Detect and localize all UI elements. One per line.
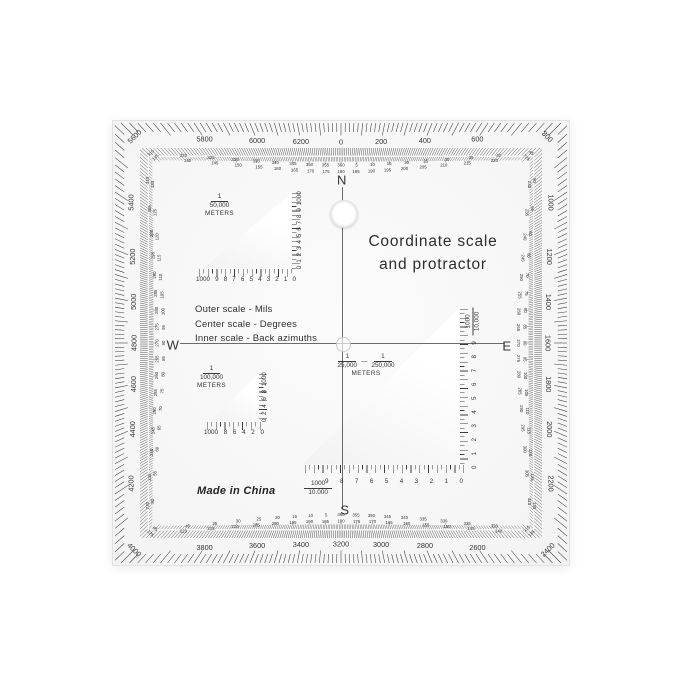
scale-tick bbox=[410, 123, 413, 132]
scale-tick bbox=[411, 525, 413, 529]
scale-tick bbox=[363, 157, 364, 161]
back-azimuth-label: 50 bbox=[150, 499, 155, 504]
scale-tick bbox=[558, 289, 567, 291]
scale-tick bbox=[521, 123, 529, 132]
scale-tick bbox=[234, 148, 238, 156]
scale-tick bbox=[521, 554, 529, 563]
scale-tick bbox=[149, 468, 153, 470]
scale-tick bbox=[140, 404, 148, 406]
scale-tick bbox=[149, 281, 153, 282]
scale-tick bbox=[414, 525, 416, 529]
coordinate-protractor: 0200400600800100012001400160018002000220… bbox=[112, 120, 570, 566]
mils-label: 3000 bbox=[373, 540, 389, 549]
ruler-number: 6 bbox=[297, 227, 303, 231]
scale-tick bbox=[115, 464, 124, 469]
scale-tick bbox=[301, 157, 302, 161]
scale-tick bbox=[310, 531, 311, 539]
ruler-number: 8 bbox=[340, 479, 344, 485]
mils-label: 600 bbox=[471, 134, 483, 143]
scale-tick bbox=[529, 386, 533, 387]
scale-tick bbox=[203, 525, 206, 529]
ruler-number: 1 bbox=[284, 277, 288, 283]
scale-tick bbox=[558, 448, 567, 452]
scale-tick bbox=[439, 531, 443, 539]
fraction-denominator: 10,000 bbox=[474, 312, 482, 332]
back-azimuth-label: 255 bbox=[518, 291, 523, 299]
scale-tick bbox=[140, 217, 148, 222]
scale-tick bbox=[140, 406, 148, 409]
scale-tick bbox=[433, 123, 437, 132]
mils-label: 2200 bbox=[547, 475, 556, 491]
scale-tick bbox=[534, 362, 542, 363]
scale-tick bbox=[115, 289, 124, 291]
scale-tick bbox=[300, 525, 301, 529]
scale-tick bbox=[464, 531, 469, 539]
scale-tick bbox=[558, 134, 567, 143]
ruler-number: 0 bbox=[292, 277, 296, 283]
scale-tick bbox=[381, 157, 382, 161]
scale-tick bbox=[149, 373, 153, 374]
scale-tick bbox=[193, 157, 196, 161]
scale-tick bbox=[264, 525, 266, 529]
scale-tick bbox=[190, 148, 196, 156]
scale-tick bbox=[534, 381, 542, 383]
scale-tick bbox=[374, 148, 375, 156]
scale-tick bbox=[558, 185, 567, 191]
scale-tick bbox=[270, 123, 273, 132]
scale-tick bbox=[140, 241, 148, 245]
scale-tick bbox=[140, 449, 148, 453]
scale-tick bbox=[534, 307, 542, 308]
scale-tick bbox=[284, 554, 286, 563]
scale-tick bbox=[140, 408, 148, 411]
scale-tick bbox=[394, 148, 396, 156]
mils-label: 1800 bbox=[544, 376, 553, 392]
scale-tick bbox=[218, 123, 223, 132]
scale-tick bbox=[234, 531, 238, 539]
scale-tick bbox=[534, 449, 542, 453]
scale-tick bbox=[140, 441, 148, 445]
scale-tick bbox=[529, 385, 533, 386]
scale-tick bbox=[115, 307, 124, 308]
ruler-number: 2 bbox=[251, 430, 255, 436]
scale-tick bbox=[320, 148, 321, 156]
scale-tick bbox=[534, 303, 542, 305]
scale-tick bbox=[149, 423, 153, 425]
title-line-1: Coordinate scale bbox=[318, 230, 548, 253]
scale-tick bbox=[140, 483, 148, 489]
scale-tick bbox=[212, 123, 217, 132]
scale-tick bbox=[282, 148, 284, 156]
scale-tick bbox=[115, 428, 124, 432]
scale-tick bbox=[437, 531, 441, 539]
degree-label: 155 bbox=[422, 522, 430, 527]
scale-tick bbox=[318, 157, 319, 161]
scale-tick bbox=[279, 554, 282, 563]
back-azimuth-label: 215 bbox=[464, 160, 472, 165]
ruler-number: 5 bbox=[249, 277, 253, 283]
scale-tick bbox=[530, 522, 533, 525]
scale-tick bbox=[316, 531, 317, 539]
scale-tick bbox=[558, 438, 567, 442]
scale-tick bbox=[529, 400, 533, 401]
scale-tick bbox=[307, 525, 308, 529]
scale-tick bbox=[140, 372, 148, 373]
back-azimuth-label: 265 bbox=[516, 324, 521, 332]
scale-tick bbox=[558, 418, 567, 421]
scale-tick bbox=[427, 551, 432, 564]
scale-tick bbox=[413, 157, 415, 161]
scale-tick bbox=[558, 507, 567, 514]
back-azimuth-label: 145 bbox=[211, 160, 219, 165]
scale-tick bbox=[140, 168, 148, 175]
back-azimuth-label: 20 bbox=[275, 515, 280, 520]
scale-tick bbox=[115, 382, 124, 384]
scale-tick bbox=[140, 518, 148, 525]
scale-tick bbox=[140, 194, 148, 200]
scale-label-100k: 1100,000 METERS bbox=[197, 365, 226, 390]
scale-tick bbox=[140, 288, 148, 290]
ruler-number: 2 bbox=[297, 253, 303, 257]
scale-tick bbox=[115, 443, 124, 447]
degree-label: 200 bbox=[272, 521, 280, 526]
scale-tick bbox=[239, 148, 243, 156]
degree-label: 330 bbox=[231, 157, 239, 162]
scale-tick bbox=[534, 383, 542, 385]
ruler-number: 1000 bbox=[262, 372, 268, 386]
scale-tick bbox=[149, 225, 153, 227]
scale-tick bbox=[302, 554, 304, 563]
scale-tick bbox=[190, 526, 193, 529]
scale-tick bbox=[282, 157, 283, 161]
ruler-number: 5 bbox=[297, 234, 303, 238]
scale-tick bbox=[198, 157, 201, 161]
scale-tick bbox=[402, 148, 404, 156]
scale-tick bbox=[558, 325, 567, 326]
scale-tick bbox=[505, 526, 508, 529]
scale-tick bbox=[115, 418, 124, 421]
scale-tick bbox=[534, 495, 542, 501]
scale-tick bbox=[149, 314, 153, 315]
scale-tick bbox=[534, 370, 542, 371]
degree-label: 205 bbox=[253, 522, 261, 527]
scale-tick bbox=[534, 288, 542, 290]
scale-tick bbox=[534, 280, 542, 282]
scale-tick bbox=[373, 531, 374, 539]
scale-tick bbox=[149, 465, 153, 467]
scale-tick bbox=[558, 443, 567, 447]
scale-tick bbox=[149, 265, 153, 267]
scale-tick bbox=[115, 244, 124, 248]
scale-tick bbox=[168, 123, 175, 132]
scale-tick bbox=[115, 373, 124, 374]
scale-tick bbox=[115, 482, 124, 488]
mils-label: 3400 bbox=[293, 540, 309, 549]
scale-tick bbox=[219, 531, 224, 539]
scale-tick bbox=[530, 513, 533, 516]
scale-tick bbox=[149, 364, 153, 365]
mils-label: 0 bbox=[339, 138, 343, 147]
scale-tick bbox=[529, 306, 533, 307]
scale-tick bbox=[115, 228, 124, 233]
back-azimuth-label: 285 bbox=[518, 387, 523, 395]
scale-tick bbox=[115, 536, 124, 544]
degree-label: 105 bbox=[524, 389, 529, 397]
scale-tick bbox=[453, 148, 457, 156]
scale-tick bbox=[361, 123, 362, 136]
scale-tick bbox=[534, 286, 542, 288]
scale-tick bbox=[384, 531, 386, 539]
scale-tick bbox=[558, 228, 567, 233]
degree-label: 270 bbox=[155, 339, 160, 347]
scale-tick bbox=[529, 439, 533, 441]
scale-tick bbox=[140, 313, 148, 314]
scale-tick bbox=[529, 458, 533, 460]
scale-tick bbox=[140, 307, 148, 308]
back-azimuth-label: 110 bbox=[158, 273, 163, 280]
back-azimuth-label: 100 bbox=[160, 307, 165, 315]
degree-label: 235 bbox=[147, 473, 152, 481]
scale-tick bbox=[451, 531, 455, 539]
scale-tick bbox=[115, 312, 124, 313]
ruler-numbers-100k-bottom: 100086420 bbox=[204, 430, 264, 436]
scale-tick bbox=[558, 373, 567, 374]
scale-tick bbox=[140, 444, 148, 448]
scale-tick bbox=[558, 165, 567, 172]
scale-tick bbox=[383, 525, 384, 529]
scale-tick bbox=[115, 494, 124, 500]
scale-tick bbox=[558, 482, 567, 488]
scale-tick bbox=[284, 531, 286, 539]
scale-tick bbox=[529, 465, 533, 467]
scale-tick bbox=[457, 525, 459, 529]
scale-tick bbox=[534, 522, 542, 529]
ruler-label-25k-bottom: 100010.000 bbox=[304, 480, 330, 497]
scale-tick bbox=[534, 395, 542, 397]
scale-tick bbox=[529, 419, 533, 421]
scale-tick bbox=[530, 161, 533, 164]
scale-tick bbox=[365, 531, 366, 539]
scale-tick bbox=[149, 319, 153, 320]
scale-tick bbox=[149, 304, 153, 305]
compass-west: W bbox=[167, 338, 180, 353]
scale-tick bbox=[140, 522, 148, 529]
scale-tick bbox=[534, 188, 542, 194]
scale-tick bbox=[149, 239, 153, 241]
scale-tick bbox=[174, 526, 177, 529]
scale-tick bbox=[181, 123, 188, 132]
ruler-number: 8 bbox=[224, 430, 228, 436]
scale-tick bbox=[140, 459, 148, 464]
scale-tick bbox=[288, 148, 290, 156]
scale-tick bbox=[140, 486, 148, 492]
scale-tick bbox=[229, 554, 234, 563]
scale-tick bbox=[534, 464, 542, 469]
scale-tick bbox=[140, 515, 148, 522]
scale-tick bbox=[328, 148, 329, 156]
back-azimuth-label: 70 bbox=[158, 406, 163, 411]
scale-tick bbox=[455, 525, 457, 529]
scale-tick bbox=[534, 368, 542, 369]
scale-tick bbox=[534, 374, 542, 375]
scale-tick bbox=[511, 148, 518, 156]
center-circle bbox=[336, 337, 351, 352]
scale-tick bbox=[140, 376, 148, 377]
scale-tick bbox=[558, 382, 567, 384]
scale-tick bbox=[456, 531, 461, 539]
scale-tick bbox=[115, 165, 124, 172]
ruler-number: 0 bbox=[459, 479, 463, 485]
scale-tick bbox=[149, 441, 153, 443]
back-azimuth-label: 10 bbox=[308, 513, 313, 518]
scale-tick bbox=[404, 123, 408, 136]
scale-tick bbox=[326, 148, 327, 156]
degree-label: 305 bbox=[147, 205, 152, 213]
scale-tick bbox=[140, 309, 148, 310]
scale-tick bbox=[529, 368, 533, 369]
scale-tick bbox=[558, 476, 567, 482]
scale-tick bbox=[302, 123, 304, 132]
back-azimuth-label: 30 bbox=[236, 519, 241, 524]
scale-tick bbox=[174, 123, 181, 132]
scale-tick bbox=[242, 148, 246, 156]
scale-tick bbox=[534, 398, 542, 400]
product-photo: 0200400600800100012001400160018002000220… bbox=[0, 0, 700, 700]
scale-tick bbox=[115, 126, 124, 135]
scale-tick bbox=[396, 554, 398, 563]
scale-tick bbox=[306, 554, 307, 563]
scale-tick bbox=[171, 148, 178, 156]
scale-tick bbox=[149, 419, 153, 421]
scale-tick bbox=[140, 223, 148, 228]
scale-tick bbox=[534, 217, 542, 222]
scale-tick bbox=[558, 470, 567, 475]
scale-tick bbox=[534, 301, 542, 303]
scale-tick bbox=[529, 373, 533, 374]
scale-tick bbox=[140, 293, 148, 295]
scale-tick bbox=[140, 370, 148, 371]
scale-tick bbox=[361, 531, 362, 539]
scale-tick bbox=[300, 157, 301, 161]
scale-tick bbox=[149, 198, 153, 201]
scale-tick bbox=[279, 157, 280, 161]
scale-tick bbox=[296, 157, 297, 161]
scale-tick bbox=[115, 260, 124, 263]
scale-tick bbox=[511, 531, 518, 539]
scale-tick bbox=[314, 531, 315, 539]
scale-tick bbox=[199, 531, 204, 539]
ruler-label-25k-side: 100010,000 bbox=[465, 310, 482, 336]
scale-tick bbox=[149, 482, 153, 485]
scale-tick bbox=[534, 454, 542, 458]
scale-tick bbox=[297, 551, 299, 564]
scale-tick bbox=[320, 531, 321, 539]
scale-tick bbox=[140, 297, 148, 299]
scale-tick bbox=[529, 221, 533, 223]
degree-label: 280 bbox=[154, 306, 159, 314]
scale-tick bbox=[312, 148, 313, 156]
scale-tick bbox=[441, 531, 445, 539]
scale-tick bbox=[469, 531, 474, 539]
mils-label: 4200 bbox=[126, 475, 135, 491]
scale-tick bbox=[244, 157, 246, 161]
scale-tick bbox=[529, 404, 533, 405]
scale-tick bbox=[356, 531, 357, 539]
degree-label: 360 bbox=[337, 163, 345, 168]
scale-tick bbox=[380, 157, 381, 161]
scale-tick bbox=[149, 463, 153, 465]
scale-tick bbox=[433, 554, 437, 563]
scale-tick bbox=[115, 179, 124, 186]
scale-tick bbox=[308, 531, 309, 539]
scale-tick bbox=[558, 453, 567, 458]
scale-tick bbox=[451, 148, 455, 156]
scale-tick bbox=[279, 123, 282, 132]
scale-tick bbox=[149, 249, 153, 251]
scale-tick bbox=[326, 531, 327, 539]
scale-tick bbox=[314, 148, 315, 156]
scale-tick bbox=[370, 157, 371, 161]
ruler-number: 7 bbox=[297, 221, 303, 225]
scale-tick bbox=[140, 378, 148, 379]
scale-tick bbox=[140, 379, 148, 380]
mils-label: 2600 bbox=[469, 543, 485, 552]
scale-tick bbox=[437, 148, 441, 156]
scale-tick bbox=[558, 293, 567, 295]
ruler-numbers-25k-side: 0123456789 bbox=[472, 341, 478, 469]
scale-tick bbox=[140, 278, 148, 281]
scale-tick bbox=[529, 216, 533, 218]
mils-label: 6000 bbox=[249, 136, 265, 145]
scale-tick bbox=[529, 282, 533, 283]
scale-tick bbox=[373, 148, 374, 156]
scale-tick bbox=[514, 157, 517, 160]
scale-tick bbox=[358, 148, 359, 156]
degree-label: 85 bbox=[523, 325, 528, 330]
scale-tick bbox=[477, 531, 482, 539]
scale-tick bbox=[514, 531, 521, 539]
degree-label: 170 bbox=[369, 519, 377, 524]
scale-tick bbox=[224, 148, 228, 156]
scale-tick bbox=[558, 239, 567, 243]
scale-tick bbox=[206, 554, 212, 563]
scale-tick bbox=[224, 531, 228, 539]
scale-tick bbox=[286, 531, 288, 539]
scale-tick bbox=[558, 303, 567, 305]
scale-tick bbox=[374, 554, 375, 563]
scale-tick bbox=[534, 200, 542, 206]
scale-tick bbox=[115, 369, 124, 370]
scale-tick bbox=[534, 325, 542, 326]
scale-tick bbox=[558, 126, 567, 135]
scale-tick bbox=[149, 288, 153, 289]
scale-tick bbox=[225, 525, 227, 529]
scale-tick bbox=[140, 366, 148, 367]
scale-tick bbox=[534, 404, 542, 406]
scale-tick bbox=[529, 421, 533, 423]
scale-tick bbox=[534, 197, 542, 203]
scale-tick bbox=[418, 525, 420, 529]
scale-tick bbox=[115, 413, 124, 416]
scale-tick bbox=[558, 265, 567, 268]
scale-tick bbox=[201, 525, 204, 529]
scale-tick bbox=[306, 123, 307, 132]
back-azimuth-label: 195 bbox=[384, 167, 392, 172]
scale-tick bbox=[379, 123, 381, 132]
scale-tick bbox=[534, 297, 542, 299]
scale-tick bbox=[115, 543, 124, 552]
scale-tick bbox=[419, 123, 422, 132]
